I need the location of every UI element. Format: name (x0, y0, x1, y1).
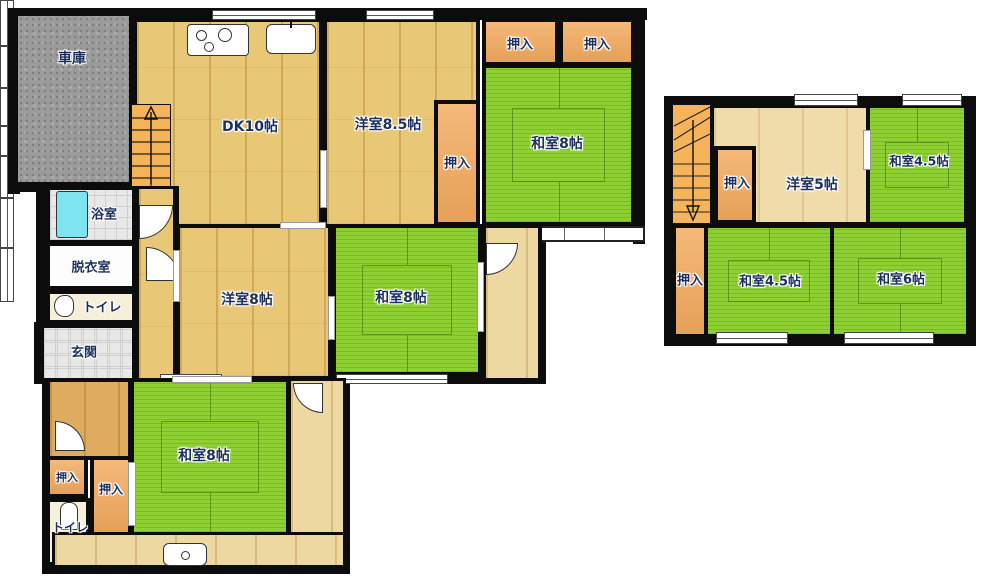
tatami-line (900, 228, 901, 258)
room-label: 玄関 (71, 342, 97, 361)
closet-label: 押入 (677, 270, 703, 289)
room-label: トイレ (82, 297, 121, 316)
room-label: 浴室 (91, 204, 117, 223)
drain-icon (181, 551, 190, 560)
closet-label: 押入 (444, 153, 470, 172)
burner-icon (218, 28, 232, 42)
room-label: トイレ (52, 519, 88, 536)
room-label: 和室8帖 (531, 133, 583, 153)
room-label: 和室8帖 (375, 287, 427, 307)
door-opening (172, 376, 252, 383)
tatami-line (559, 182, 560, 222)
tatami-line (917, 108, 918, 142)
floor-plan: 車庫 DK10帖 洋室8.5帖 押入 押入 押入 和室8帖 (0, 0, 1000, 580)
toilet-icon (54, 295, 74, 317)
room-label: 和室4.5帖 (739, 271, 801, 290)
door-opening (477, 262, 484, 332)
door-opening (328, 296, 335, 340)
window (212, 10, 316, 20)
room-label: 洋室5帖 (786, 174, 838, 194)
window (336, 374, 448, 384)
closet-label: 押入 (99, 481, 123, 498)
room-label: 脱衣室 (71, 257, 110, 276)
window (844, 332, 934, 344)
room-label: DK10帖 (222, 116, 278, 136)
door-opening (128, 462, 136, 526)
room-label: 洋室8.5帖 (355, 114, 422, 134)
door-opening (173, 250, 180, 302)
bathtub-icon (56, 191, 88, 238)
room-label: 和室8帖 (178, 445, 230, 465)
washbasin-icon (163, 543, 207, 566)
door-opening (280, 222, 326, 229)
burner-icon (204, 42, 214, 52)
door-opening (320, 150, 327, 208)
window (0, 248, 14, 302)
tatami-line (407, 228, 408, 265)
closet-label: 押入 (584, 34, 610, 53)
window (794, 94, 858, 106)
tatami-line (769, 228, 770, 260)
closet-label: 押入 (724, 173, 750, 192)
window (0, 198, 14, 248)
burner-icon (196, 30, 207, 41)
tatami-line (210, 493, 211, 532)
room-label: 和室6帖 (877, 269, 925, 288)
stove-icon (187, 24, 249, 56)
window (716, 332, 788, 344)
room-label: 洋室8帖 (221, 289, 273, 309)
room-label: 車庫 (58, 48, 86, 68)
tatami-line (210, 382, 211, 421)
tatami-line (900, 304, 901, 334)
tatami-line (407, 335, 408, 372)
room-garage (12, 10, 135, 188)
stairs-1f-up (131, 104, 171, 190)
closet-label: 押入 (56, 469, 78, 485)
window (902, 94, 962, 106)
window (366, 10, 434, 20)
stairs-2f-down (672, 104, 714, 224)
tatami-line (559, 68, 560, 108)
closet-label: 押入 (507, 34, 533, 53)
door-opening (863, 130, 871, 170)
sink-icon (266, 24, 316, 54)
room-label: 和室4.5帖 (889, 151, 949, 170)
